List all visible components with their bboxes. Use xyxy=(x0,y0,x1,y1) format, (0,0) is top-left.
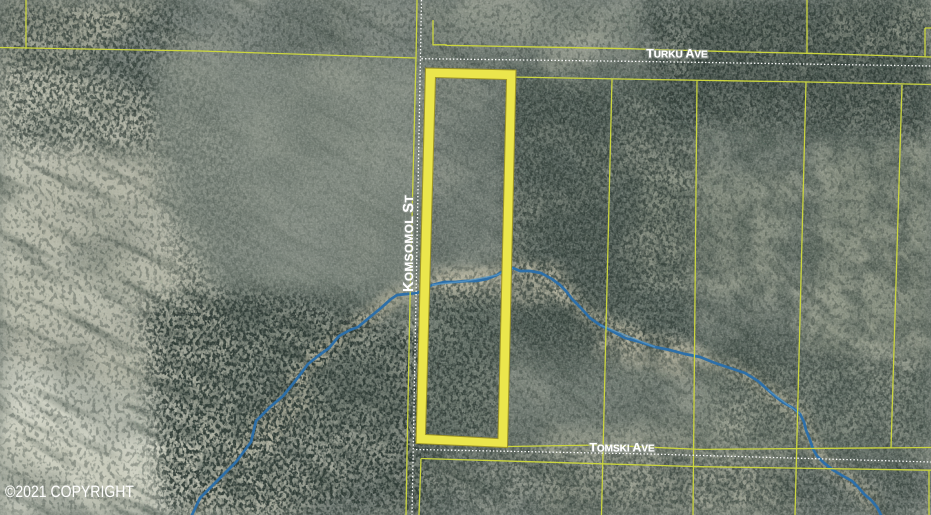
svg-text:KOMSOMOL ST: KOMSOMOL ST xyxy=(401,195,417,292)
svg-text:©2021 COPYRIGHT: ©2021 COPYRIGHT xyxy=(5,483,134,501)
svg-text:TOMSKI AVE: TOMSKI AVE xyxy=(589,441,655,455)
svg-text:TURKU AVE: TURKU AVE xyxy=(646,47,708,61)
